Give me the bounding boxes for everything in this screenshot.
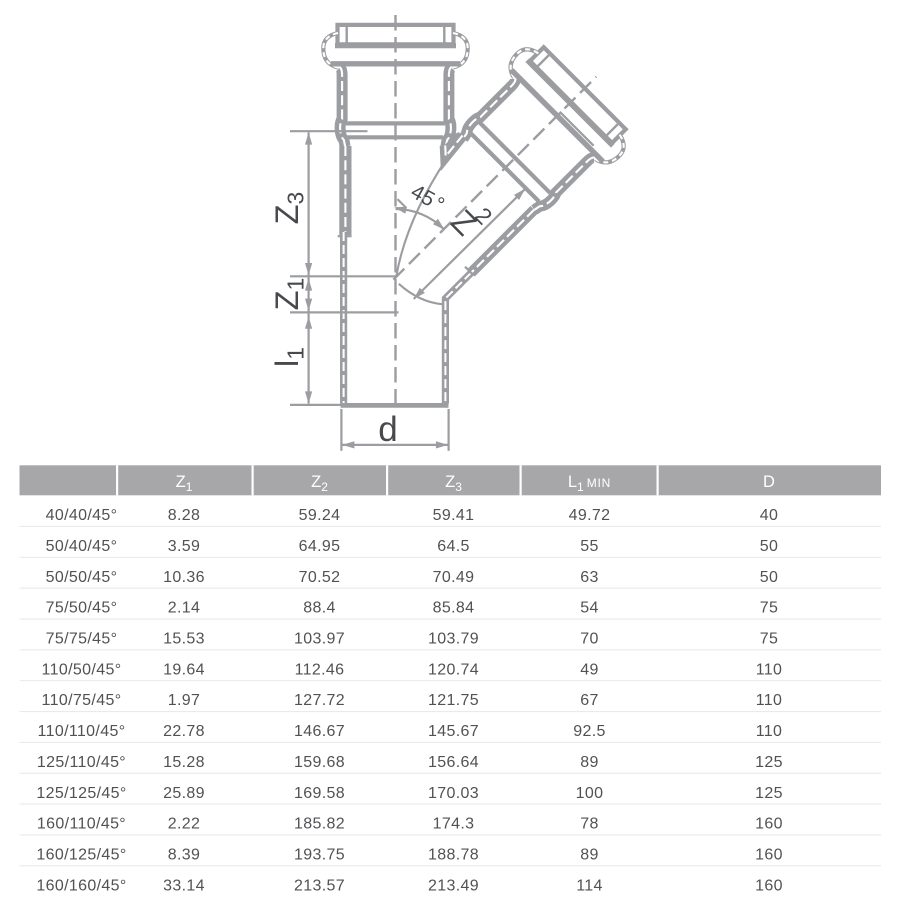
svg-text:174.3: 174.3	[433, 816, 475, 833]
svg-text:67: 67	[580, 692, 599, 709]
svg-text:125: 125	[755, 785, 783, 802]
svg-text:110/110/45°: 110/110/45°	[38, 723, 126, 740]
svg-text:89: 89	[580, 754, 599, 771]
svg-text:110/75/45°: 110/75/45°	[42, 692, 122, 709]
svg-text:1.97: 1.97	[168, 692, 201, 709]
svg-text:146.67: 146.67	[294, 723, 345, 740]
svg-text:110/50/45°: 110/50/45°	[42, 661, 122, 678]
svg-text:D: D	[763, 473, 775, 491]
svg-text:15.53: 15.53	[163, 631, 205, 648]
svg-text:50/50/45°: 50/50/45°	[46, 569, 118, 586]
svg-text:145.67: 145.67	[428, 723, 479, 740]
svg-text:l1: l1	[269, 347, 309, 367]
svg-text:120.74: 120.74	[428, 661, 479, 678]
svg-text:59.41: 59.41	[433, 507, 475, 524]
svg-text:121.75: 121.75	[428, 692, 479, 709]
svg-text:160/160/45°: 160/160/45°	[36, 877, 126, 894]
svg-text:125/125/45°: 125/125/45°	[36, 785, 126, 802]
svg-text:8.28: 8.28	[168, 507, 201, 524]
svg-text:160/125/45°: 160/125/45°	[36, 847, 126, 864]
svg-text:92.5: 92.5	[573, 723, 606, 740]
svg-text:50: 50	[760, 538, 779, 555]
svg-text:170.03: 170.03	[428, 785, 479, 802]
svg-text:75/75/45°: 75/75/45°	[46, 631, 118, 648]
svg-text:63: 63	[580, 569, 599, 586]
svg-text:Z1: Z1	[269, 278, 309, 311]
svg-text:125: 125	[755, 754, 783, 771]
svg-text:40/40/45°: 40/40/45°	[46, 507, 118, 524]
svg-text:40: 40	[760, 507, 779, 524]
svg-text:110: 110	[756, 723, 783, 740]
svg-text:110: 110	[756, 692, 783, 709]
svg-text:70: 70	[580, 631, 599, 648]
svg-text:19.64: 19.64	[163, 661, 205, 678]
svg-text:185.82: 185.82	[294, 816, 345, 833]
svg-text:193.75: 193.75	[294, 847, 345, 864]
svg-text:110: 110	[756, 661, 783, 678]
svg-text:159.68: 159.68	[294, 754, 345, 771]
svg-text:75: 75	[760, 631, 779, 648]
svg-text:49.72: 49.72	[569, 507, 611, 524]
svg-text:22.78: 22.78	[163, 723, 205, 740]
svg-text:50: 50	[760, 569, 779, 586]
svg-text:10.36: 10.36	[163, 569, 205, 586]
svg-text:2.14: 2.14	[168, 600, 201, 617]
svg-text:160: 160	[755, 847, 783, 864]
svg-text:213.49: 213.49	[428, 877, 479, 894]
svg-text:75/50/45°: 75/50/45°	[46, 600, 118, 617]
svg-text:160: 160	[755, 816, 783, 833]
svg-text:70.49: 70.49	[433, 569, 475, 586]
svg-text:15.28: 15.28	[163, 754, 205, 771]
svg-text:59.24: 59.24	[299, 507, 341, 524]
svg-text:213.57: 213.57	[294, 877, 345, 894]
svg-text:188.78: 188.78	[428, 847, 479, 864]
svg-text:88.4: 88.4	[303, 600, 336, 617]
svg-text:49: 49	[580, 661, 599, 678]
svg-text:2.22: 2.22	[168, 816, 201, 833]
svg-text:55: 55	[580, 538, 599, 555]
svg-text:103.79: 103.79	[428, 631, 479, 648]
svg-text:64.5: 64.5	[437, 538, 470, 555]
svg-text:Z3: Z3	[269, 192, 309, 225]
svg-text:160: 160	[755, 877, 783, 894]
svg-text:54: 54	[580, 600, 599, 617]
svg-text:160/110/45°: 160/110/45°	[37, 816, 126, 833]
svg-text:d: d	[378, 410, 397, 449]
svg-text:64.95: 64.95	[299, 538, 341, 555]
svg-text:125/110/45°: 125/110/45°	[37, 754, 126, 771]
svg-text:25.89: 25.89	[163, 785, 205, 802]
svg-text:112.46: 112.46	[295, 661, 345, 678]
svg-text:85.84: 85.84	[433, 600, 475, 617]
svg-text:70.52: 70.52	[299, 569, 341, 586]
svg-text:169.58: 169.58	[294, 785, 345, 802]
svg-text:103.97: 103.97	[294, 631, 345, 648]
svg-text:75: 75	[760, 600, 779, 617]
svg-text:78: 78	[580, 816, 599, 833]
svg-text:33.14: 33.14	[163, 877, 205, 894]
svg-text:156.64: 156.64	[428, 754, 479, 771]
svg-text:50/40/45°: 50/40/45°	[46, 538, 118, 555]
svg-text:3.59: 3.59	[168, 538, 201, 555]
svg-text:127.72: 127.72	[294, 692, 345, 709]
svg-text:8.39: 8.39	[168, 847, 201, 864]
svg-text:114: 114	[576, 877, 603, 894]
svg-text:89: 89	[580, 847, 599, 864]
svg-text:100: 100	[576, 785, 604, 802]
